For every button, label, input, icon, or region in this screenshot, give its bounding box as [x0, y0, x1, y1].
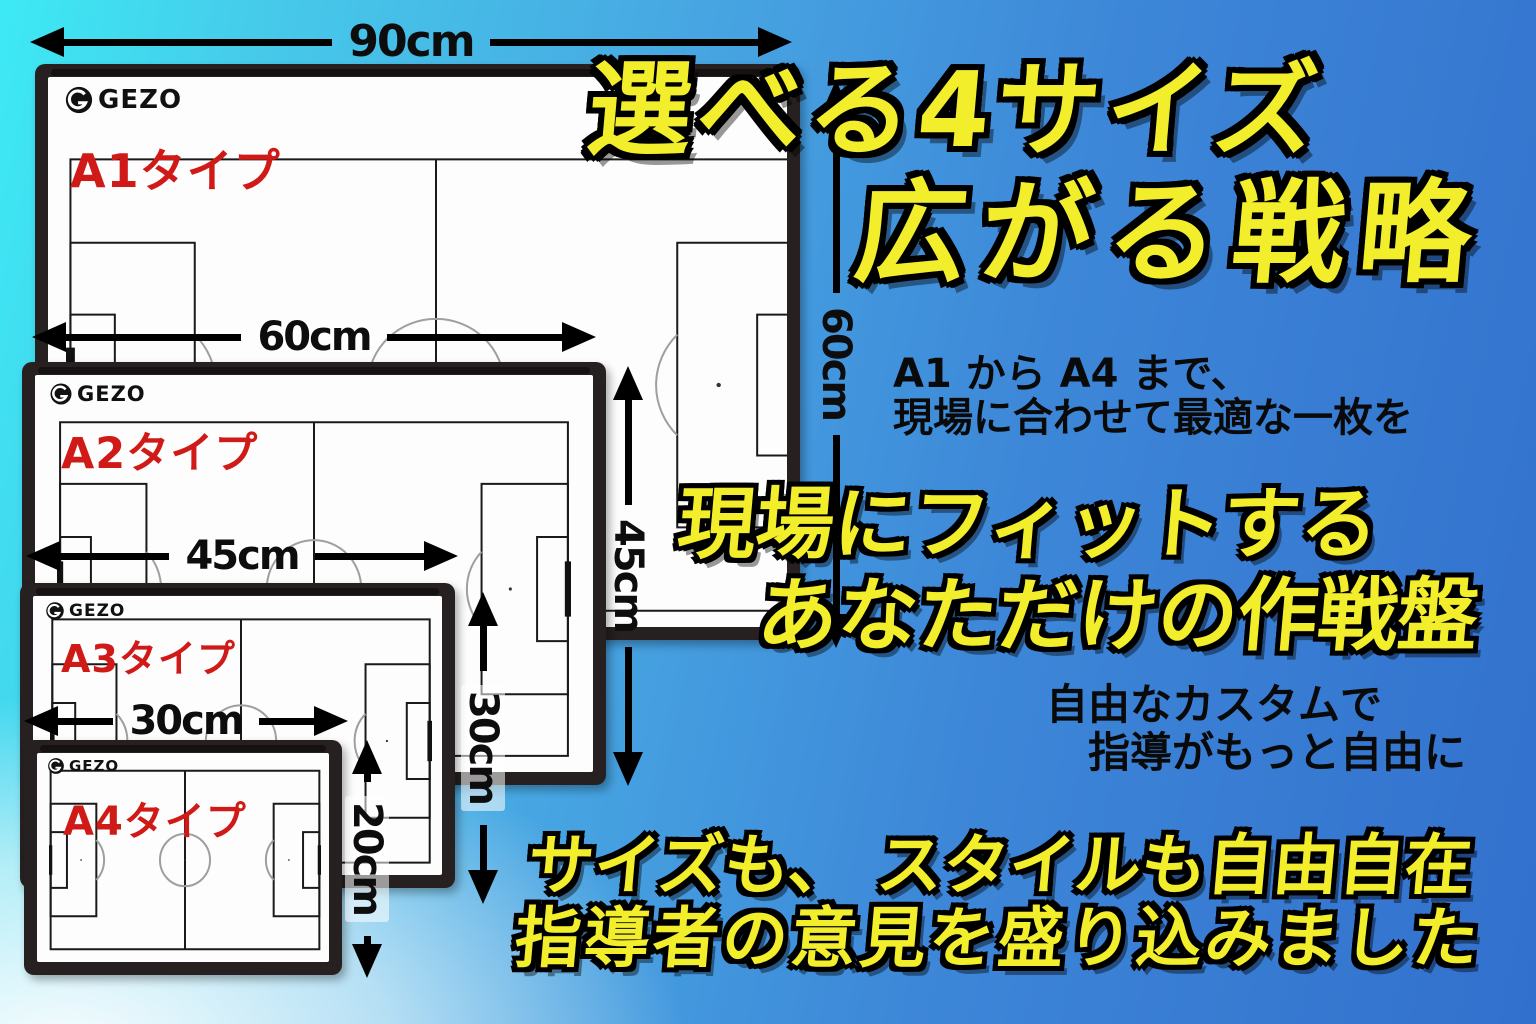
dim-a3-width-label: 45cm [185, 536, 298, 576]
subtext1-line2: 現場に合わせて最適な一枚を [893, 398, 1413, 438]
gezo-logo-text: GEZO [77, 382, 146, 406]
gezo-logo-icon [64, 85, 94, 115]
headline3-line1: サイズも、 スタイルも自由自在 [525, 833, 1474, 899]
promo-banner: GEZO A1タイプ [0, 0, 1536, 1024]
board-a4: GEZO A4タイプ [24, 740, 342, 975]
headline1-line2: 広がる戦略 [850, 178, 1490, 290]
arrow-right-icon [562, 322, 596, 352]
arrow-up-icon [468, 592, 498, 626]
subtext1-line1: A1 から A4 まで、 [893, 354, 1251, 394]
gezo-logo: GEZO [64, 85, 182, 115]
arrow-up-icon [613, 366, 643, 400]
dim-a2-height-label: 45cm [608, 519, 648, 632]
dim-a2-width: 60cm [32, 312, 596, 362]
gezo-logo-icon [45, 601, 65, 621]
dim-a4-width-label: 30cm [129, 701, 242, 741]
dim-a4-height: 20cm [341, 740, 393, 978]
headline1-line1: 選べる4サイズ [583, 58, 1327, 162]
board-a4-label: A4タイプ [63, 789, 247, 847]
gezo-logo: GEZO [45, 601, 125, 621]
arrow-down-icon [613, 752, 643, 786]
headline2-line1: 現場にフィットする [675, 486, 1382, 564]
dim-a3-height-label: 30cm [461, 685, 505, 810]
gezo-logo-text: GEZO [69, 601, 125, 621]
headline2-line2: あなただけの作戦盤 [755, 576, 1482, 656]
dim-a2-width-label: 60cm [257, 317, 370, 357]
gezo-logo-icon [47, 757, 65, 775]
gezo-logo-text: GEZO [98, 85, 182, 115]
gezo-logo: GEZO [47, 757, 119, 775]
dim-a1-width-label: 90cm [348, 20, 473, 64]
arrow-down-icon [352, 944, 382, 978]
dim-a3-height: 30cm [457, 592, 509, 904]
arrow-up-icon [352, 740, 382, 774]
gezo-logo: GEZO [49, 382, 146, 406]
dim-a1-height-label: 60cm [816, 307, 856, 420]
gezo-logo-text: GEZO [69, 757, 119, 775]
dim-a4-height-label: 20cm [345, 796, 389, 921]
arrow-right-icon [314, 706, 348, 736]
gezo-logo-icon [49, 382, 73, 406]
dim-a3-width: 45cm [26, 532, 458, 580]
subtext2-line2: 指導がもっと自由に [1088, 732, 1466, 774]
dim-a2-height: 45cm [602, 366, 654, 786]
subtext2-line1: 自由なカスタムで [1046, 684, 1382, 726]
arrow-right-icon [424, 541, 458, 571]
arrow-left-icon [32, 322, 66, 352]
arrow-down-icon [468, 870, 498, 904]
arrow-left-icon [30, 27, 64, 57]
board-a3-label: A3タイプ [61, 628, 236, 683]
headline3-line2: 指導者の意見を盛り込みました [512, 906, 1484, 972]
board-a4-surface: GEZO A4タイプ [37, 753, 329, 962]
arrow-left-icon [26, 541, 60, 571]
dim-a4-width: 30cm [24, 697, 348, 745]
board-a1-label: A1タイプ [70, 135, 281, 201]
board-a2-label: A2タイプ [61, 419, 258, 481]
arrow-left-icon [24, 706, 58, 736]
